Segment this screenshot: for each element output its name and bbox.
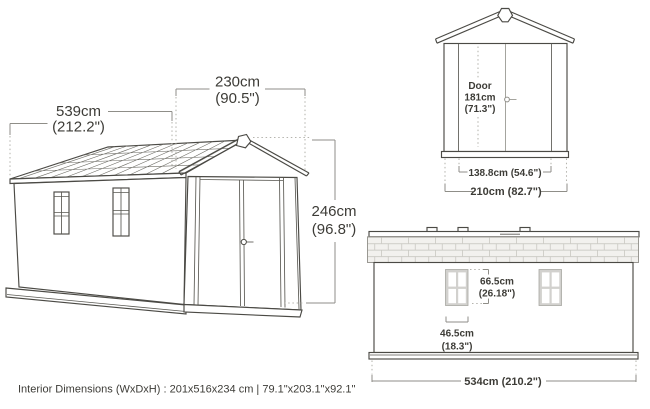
depth-label-cm: 539cm [56,103,101,120]
shed-dimension-diagram: 539cm (212.2") 230cm (90.5") 246cm (96.8… [0,0,650,409]
front-view: Door 181cm (71.3") 138.8cm (54.6") 210cm… [436,9,575,199]
door-width-label: 138.8cm (54.6") [468,168,541,179]
front-door-handle-icon [505,97,510,102]
width-label-cm: 230cm [215,74,260,91]
side-roof-brick-band [368,237,639,263]
front-width-label: 210cm (82.7") [470,186,542,198]
side-window-1 [446,270,469,306]
side-length-label: 534cm (210.2") [464,376,542,388]
door-height-cm: 181cm [464,93,495,104]
door-height-in: (71.3") [465,104,496,115]
perspective-view: 539cm (212.2") 230cm (90.5") 246cm (96.8… [6,74,357,318]
roof-peak-cap [237,135,251,148]
side-wall [14,178,186,305]
front-peak-cap [498,9,513,22]
window-height-cm: 66.5cm [480,277,514,288]
depth-label-in: (212.2") [52,119,105,136]
front-base [442,152,569,158]
side-wall-window-1 [54,192,69,234]
height-label-in: (96.8") [312,221,357,238]
side-view: 66.5cm (26.18") 46.5cm (18.3") 534cm (21… [368,228,640,389]
side-base-elevation [369,353,638,360]
front-roof [436,9,575,44]
width-label-in: (90.5") [215,90,260,107]
window-width-in: (18.3") [442,342,473,353]
window-height-in: (26.18") [479,289,515,300]
interior-dimensions-caption: Interior Dimensions (WxDxH) : 201x516x23… [18,384,355,396]
door-width-dimension: 138.8cm (54.6") [459,159,551,180]
window-width-cm: 46.5cm [440,329,474,340]
height-label-cm: 246cm [311,203,356,220]
door-word-label: Door [468,81,491,92]
door-handle-icon [241,239,246,244]
side-length-dimension: 534cm (210.2") [372,361,636,389]
side-window-2 [539,270,562,306]
side-wall-window-2 [113,188,129,236]
diagram-canvas: 539cm (212.2") 230cm (90.5") 246cm (96.8… [0,0,650,409]
